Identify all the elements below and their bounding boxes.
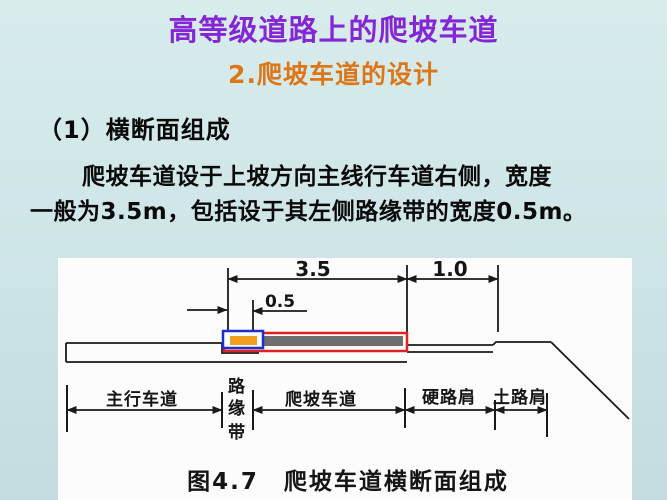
dim-text-1-0: 1.0 bbox=[432, 258, 467, 281]
label-hard-shoulder: 硬路肩 bbox=[422, 387, 476, 408]
figure-caption: 图4.7 爬坡车道横断面组成 bbox=[187, 468, 509, 495]
label-main-lane: 主行车道 bbox=[106, 389, 178, 410]
soil-shoulder-line bbox=[493, 342, 551, 345]
label-soil-shoulder: 土路肩 bbox=[493, 387, 547, 408]
slide: 高等级道路上的爬坡车道 2.爬坡车道的设计 （1）横断面组成 爬坡车道设于上坡方… bbox=[0, 0, 667, 500]
climbing-lane-fill bbox=[264, 336, 403, 346]
cross-section-figure: 3.5 1.0 0.5 bbox=[58, 258, 632, 500]
curb-band-fill bbox=[230, 336, 257, 345]
dim-text-3-5: 3.5 bbox=[295, 258, 330, 281]
label-climbing-lane: 爬坡车道 bbox=[285, 389, 357, 410]
body-line-2: 一般为3.5m，包括设于其左侧路缘带的宽度0.5m。 bbox=[30, 195, 650, 230]
dim-text-0-5: 0.5 bbox=[265, 292, 295, 312]
slide-subtitle: 2.爬坡车道的设计 bbox=[0, 49, 667, 91]
body-line-1: 爬坡车道设于上坡方向主线行车道右侧，宽度 bbox=[30, 160, 650, 195]
body-paragraph: 爬坡车道设于上坡方向主线行车道右侧，宽度 一般为3.5m，包括设于其左侧路缘带的… bbox=[30, 160, 650, 230]
cross-section-diagram: 3.5 1.0 0.5 bbox=[58, 258, 632, 500]
slide-title: 高等级道路上的爬坡车道 bbox=[0, 0, 667, 49]
label-curb-band-char-3: 带 bbox=[228, 422, 246, 443]
label-curb-band-char-1: 路 bbox=[228, 376, 246, 397]
section-heading: （1）横断面组成 bbox=[38, 110, 231, 145]
label-curb-band-char-2: 缘 bbox=[228, 398, 246, 419]
side-slope-line bbox=[551, 342, 629, 419]
